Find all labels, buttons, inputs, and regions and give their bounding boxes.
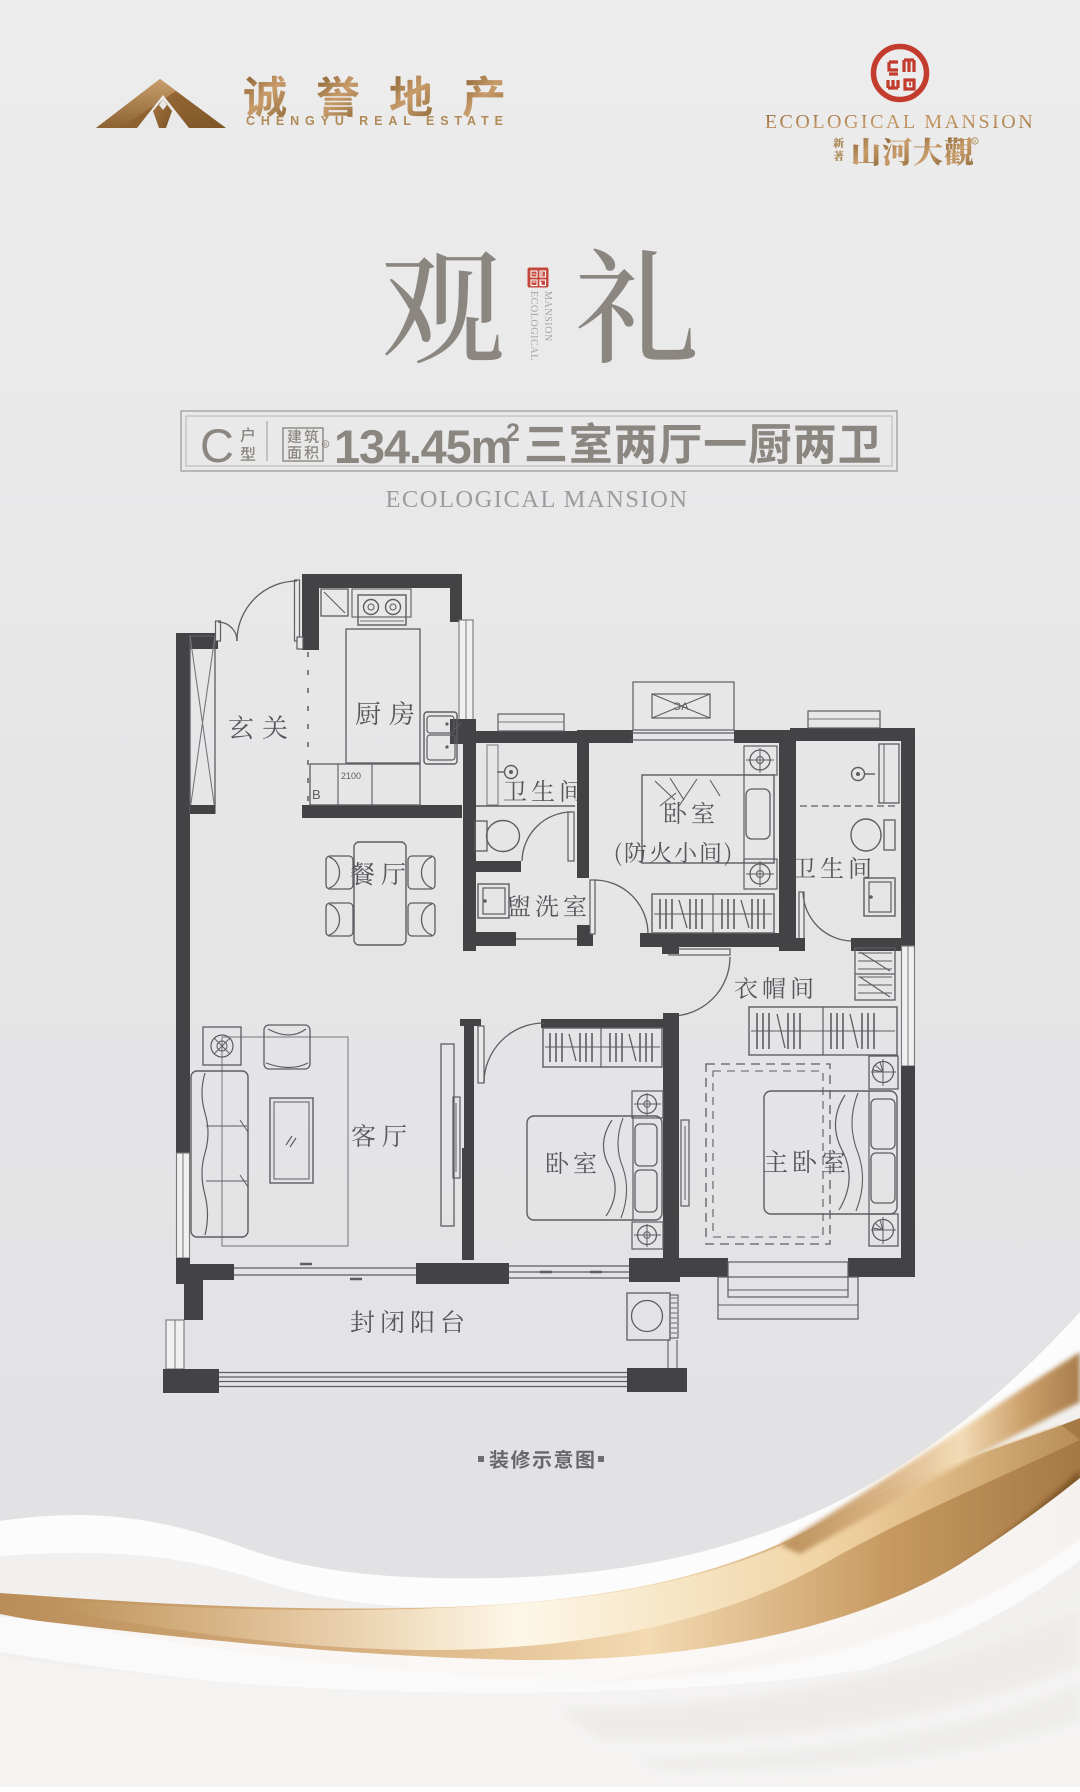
svg-text:ECOLOGICAL MANSION: ECOLOGICAL MANSION [765, 111, 1035, 133]
svg-text:R: R [324, 442, 328, 448]
svg-text:2100: 2100 [341, 771, 361, 781]
svg-text:ECOLOGICAL MANSION: ECOLOGICAL MANSION [385, 486, 688, 513]
svg-text:134.45m: 134.45m [334, 420, 511, 473]
svg-text:CHENGYU REAL ESTATE: CHENGYU REAL ESTATE [246, 114, 509, 128]
svg-text:B: B [312, 787, 321, 802]
svg-text:MANSION: MANSION [542, 291, 553, 342]
svg-text:ECOLOGICAL: ECOLOGICAL [528, 291, 539, 361]
svg-text:AC: AC [673, 701, 688, 713]
svg-text:C: C [200, 419, 234, 472]
svg-text:2: 2 [506, 419, 520, 447]
